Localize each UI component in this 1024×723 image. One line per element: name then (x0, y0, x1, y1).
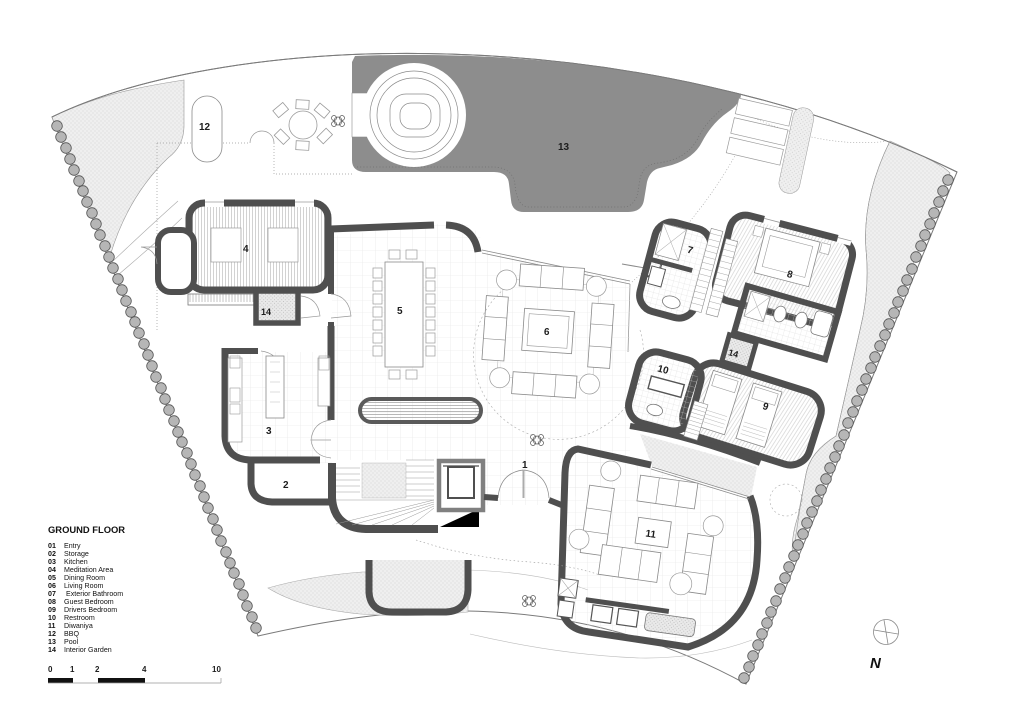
svg-text:13: 13 (48, 638, 56, 646)
svg-text:3: 3 (266, 426, 272, 437)
svg-text:Diwaniya: Diwaniya (64, 622, 93, 630)
svg-text:Entry: Entry (64, 542, 81, 550)
svg-text:0: 0 (48, 665, 53, 674)
svg-text:2: 2 (95, 665, 100, 674)
svg-text:N: N (870, 655, 882, 672)
svg-text:02: 02 (48, 550, 56, 558)
svg-text:Guest Bedroom: Guest Bedroom (64, 598, 114, 606)
svg-text:06: 06 (48, 582, 56, 590)
svg-text:10: 10 (212, 665, 221, 674)
svg-text:Living Room: Living Room (64, 582, 104, 590)
svg-text:05: 05 (48, 574, 56, 582)
svg-text:14: 14 (261, 307, 271, 317)
svg-text:Meditation Area: Meditation Area (64, 566, 113, 574)
svg-text:14: 14 (48, 646, 56, 654)
svg-text:Pool: Pool (64, 638, 79, 646)
svg-text:BBQ: BBQ (64, 630, 79, 638)
svg-text:1: 1 (70, 665, 75, 674)
svg-text:03: 03 (48, 558, 56, 566)
svg-text:4: 4 (142, 665, 147, 674)
svg-text:11: 11 (645, 528, 657, 540)
svg-text:11: 11 (48, 622, 56, 630)
svg-text:07: 07 (48, 590, 56, 598)
svg-text:4: 4 (243, 244, 249, 255)
svg-text:Dining Room: Dining Room (64, 574, 105, 582)
svg-text:08: 08 (48, 598, 56, 606)
svg-text:Storage: Storage (64, 550, 89, 558)
svg-text:10: 10 (48, 614, 56, 622)
svg-text:5: 5 (397, 306, 403, 317)
svg-text:12: 12 (199, 122, 211, 133)
svg-text:1: 1 (522, 460, 528, 471)
svg-text:Restroom: Restroom (64, 614, 95, 622)
svg-text:04: 04 (48, 566, 56, 574)
svg-text:Drivers Bedroom: Drivers Bedroom (64, 606, 117, 614)
svg-text:13: 13 (558, 142, 570, 153)
svg-text:Exterior Bathroom: Exterior Bathroom (66, 590, 123, 598)
svg-text:Interior Garden: Interior Garden (64, 646, 112, 654)
svg-text:01: 01 (48, 542, 56, 550)
svg-text:Kitchen: Kitchen (64, 558, 88, 566)
svg-text:GROUND FLOOR: GROUND FLOOR (48, 524, 125, 535)
svg-text:2: 2 (283, 480, 289, 491)
svg-text:12: 12 (48, 630, 56, 638)
svg-text:09: 09 (48, 606, 56, 614)
